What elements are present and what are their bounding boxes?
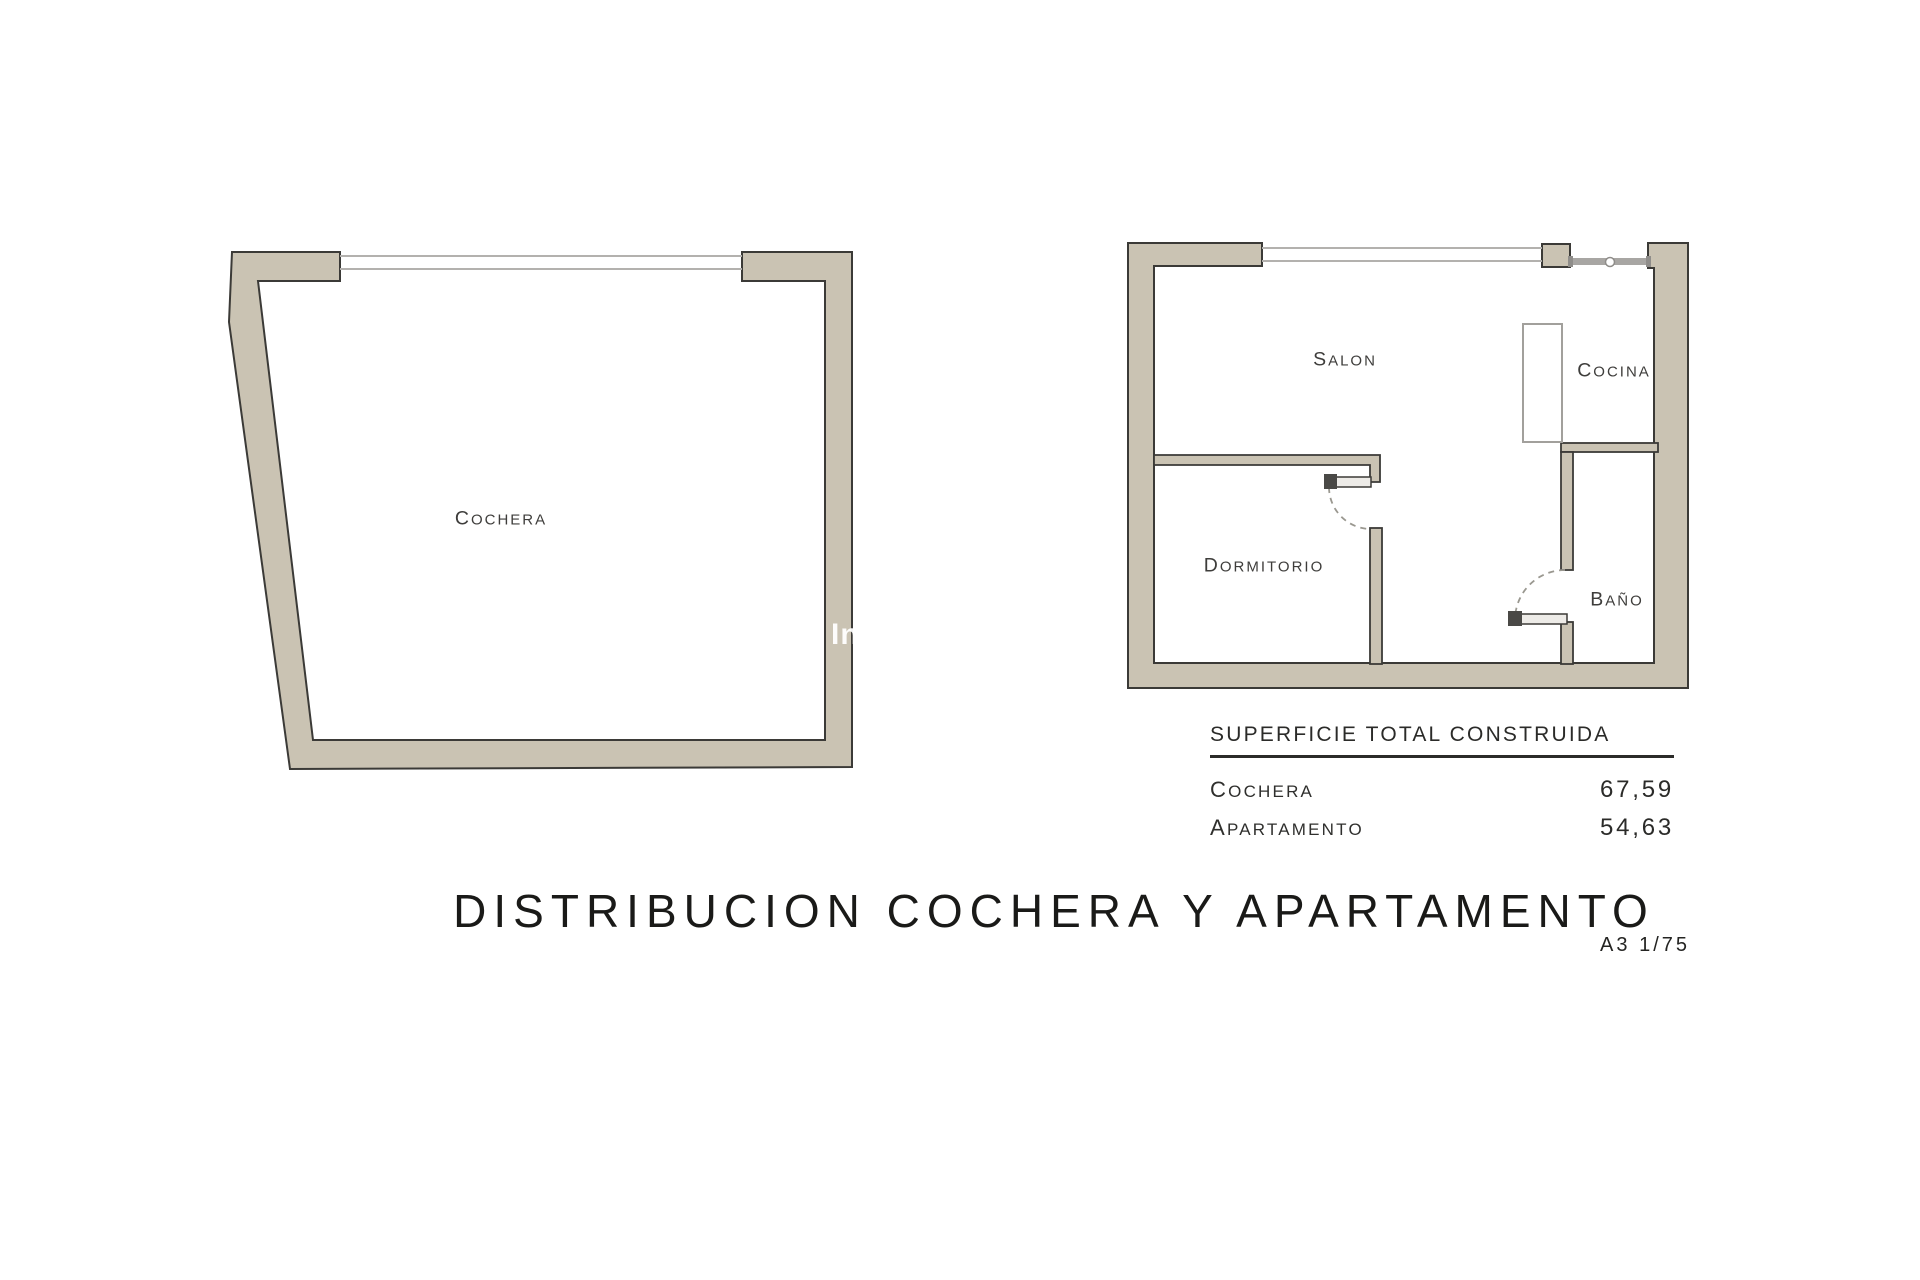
room-label-bano: BAÑO <box>1590 589 1644 612</box>
dormitorio-door-arc <box>1329 487 1371 529</box>
bano-door <box>1508 570 1567 626</box>
room-label-salon: SALON <box>1313 349 1377 372</box>
floorplan-sheet: COCHERA SALON COCINA DORMITORIO BAÑO In … <box>0 0 1920 1280</box>
cocina-bottom-wall <box>1561 443 1658 452</box>
bano-door-arc <box>1515 570 1565 620</box>
table-row: COCHERA 67,59 <box>1210 776 1674 804</box>
room-label-dormitorio: DORMITORIO <box>1204 555 1324 578</box>
kitchen-counter <box>1523 324 1562 442</box>
area-row-label-apartamento: APARTAMENTO <box>1210 815 1364 841</box>
sheet-scale-note: A3 1/75 <box>1400 934 1690 957</box>
cocina-window-end-right <box>1646 256 1651 267</box>
area-row-value-cochera: 67,59 <box>1600 776 1674 804</box>
area-table-title: SUPERFICIE TOTAL CONSTRUIDA <box>1210 723 1674 758</box>
cocina-window-end-left <box>1568 256 1573 267</box>
bano-left-wall-upper <box>1561 452 1573 570</box>
dormitorio-right-wall <box>1370 528 1382 664</box>
bano-left-wall-lower <box>1561 622 1573 664</box>
area-row-value-apartamento: 54,63 <box>1600 814 1674 842</box>
room-label-cocina: COCINA <box>1577 360 1651 383</box>
table-row: APARTAMENTO 54,63 <box>1210 814 1674 842</box>
area-table: SUPERFICIE TOTAL CONSTRUIDA COCHERA 67,5… <box>1210 723 1674 842</box>
floorplan-svg <box>0 0 1920 1280</box>
dormitorio-door-hinge <box>1324 474 1337 489</box>
room-label-cochera: COCHERA <box>455 508 547 531</box>
dormitorio-door <box>1324 474 1371 529</box>
sheet-title: DISTRIBUCION COCHERA Y APARTAMENTO <box>354 884 1754 938</box>
cocina-window-knob <box>1606 258 1615 267</box>
window-pier <box>1542 244 1570 267</box>
bano-door-hinge <box>1508 611 1522 626</box>
area-row-label-cochera: COCHERA <box>1210 777 1314 803</box>
apartment-plan-drawing <box>1128 243 1688 688</box>
bano-door-leaf <box>1515 614 1567 624</box>
watermark-text: In <box>831 618 860 652</box>
